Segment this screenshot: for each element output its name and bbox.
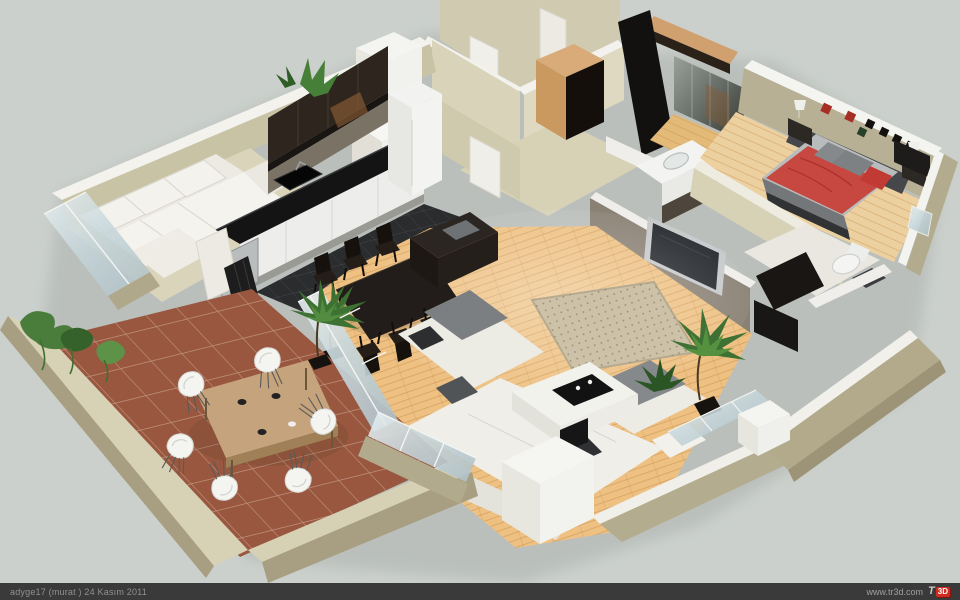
footer-bar: adyge17 (murat ) 24 Kasım 2011 www.tr3d.… (0, 583, 960, 600)
lamp (794, 100, 806, 110)
logo-cube: 3D (936, 587, 950, 597)
floorplan-scene (0, 0, 960, 583)
logo-letter: T (928, 586, 935, 597)
tr3d-logo: T 3D (928, 586, 950, 597)
website-link[interactable]: www.tr3d.com (867, 587, 924, 597)
fridge (388, 81, 442, 196)
hall-wardrobe-wood (536, 44, 604, 140)
credit-text: adyge17 (murat ) 24 Kasım 2011 (10, 587, 147, 597)
render-viewport: adyge17 (murat ) 24 Kasım 2011 www.tr3d.… (0, 0, 960, 600)
